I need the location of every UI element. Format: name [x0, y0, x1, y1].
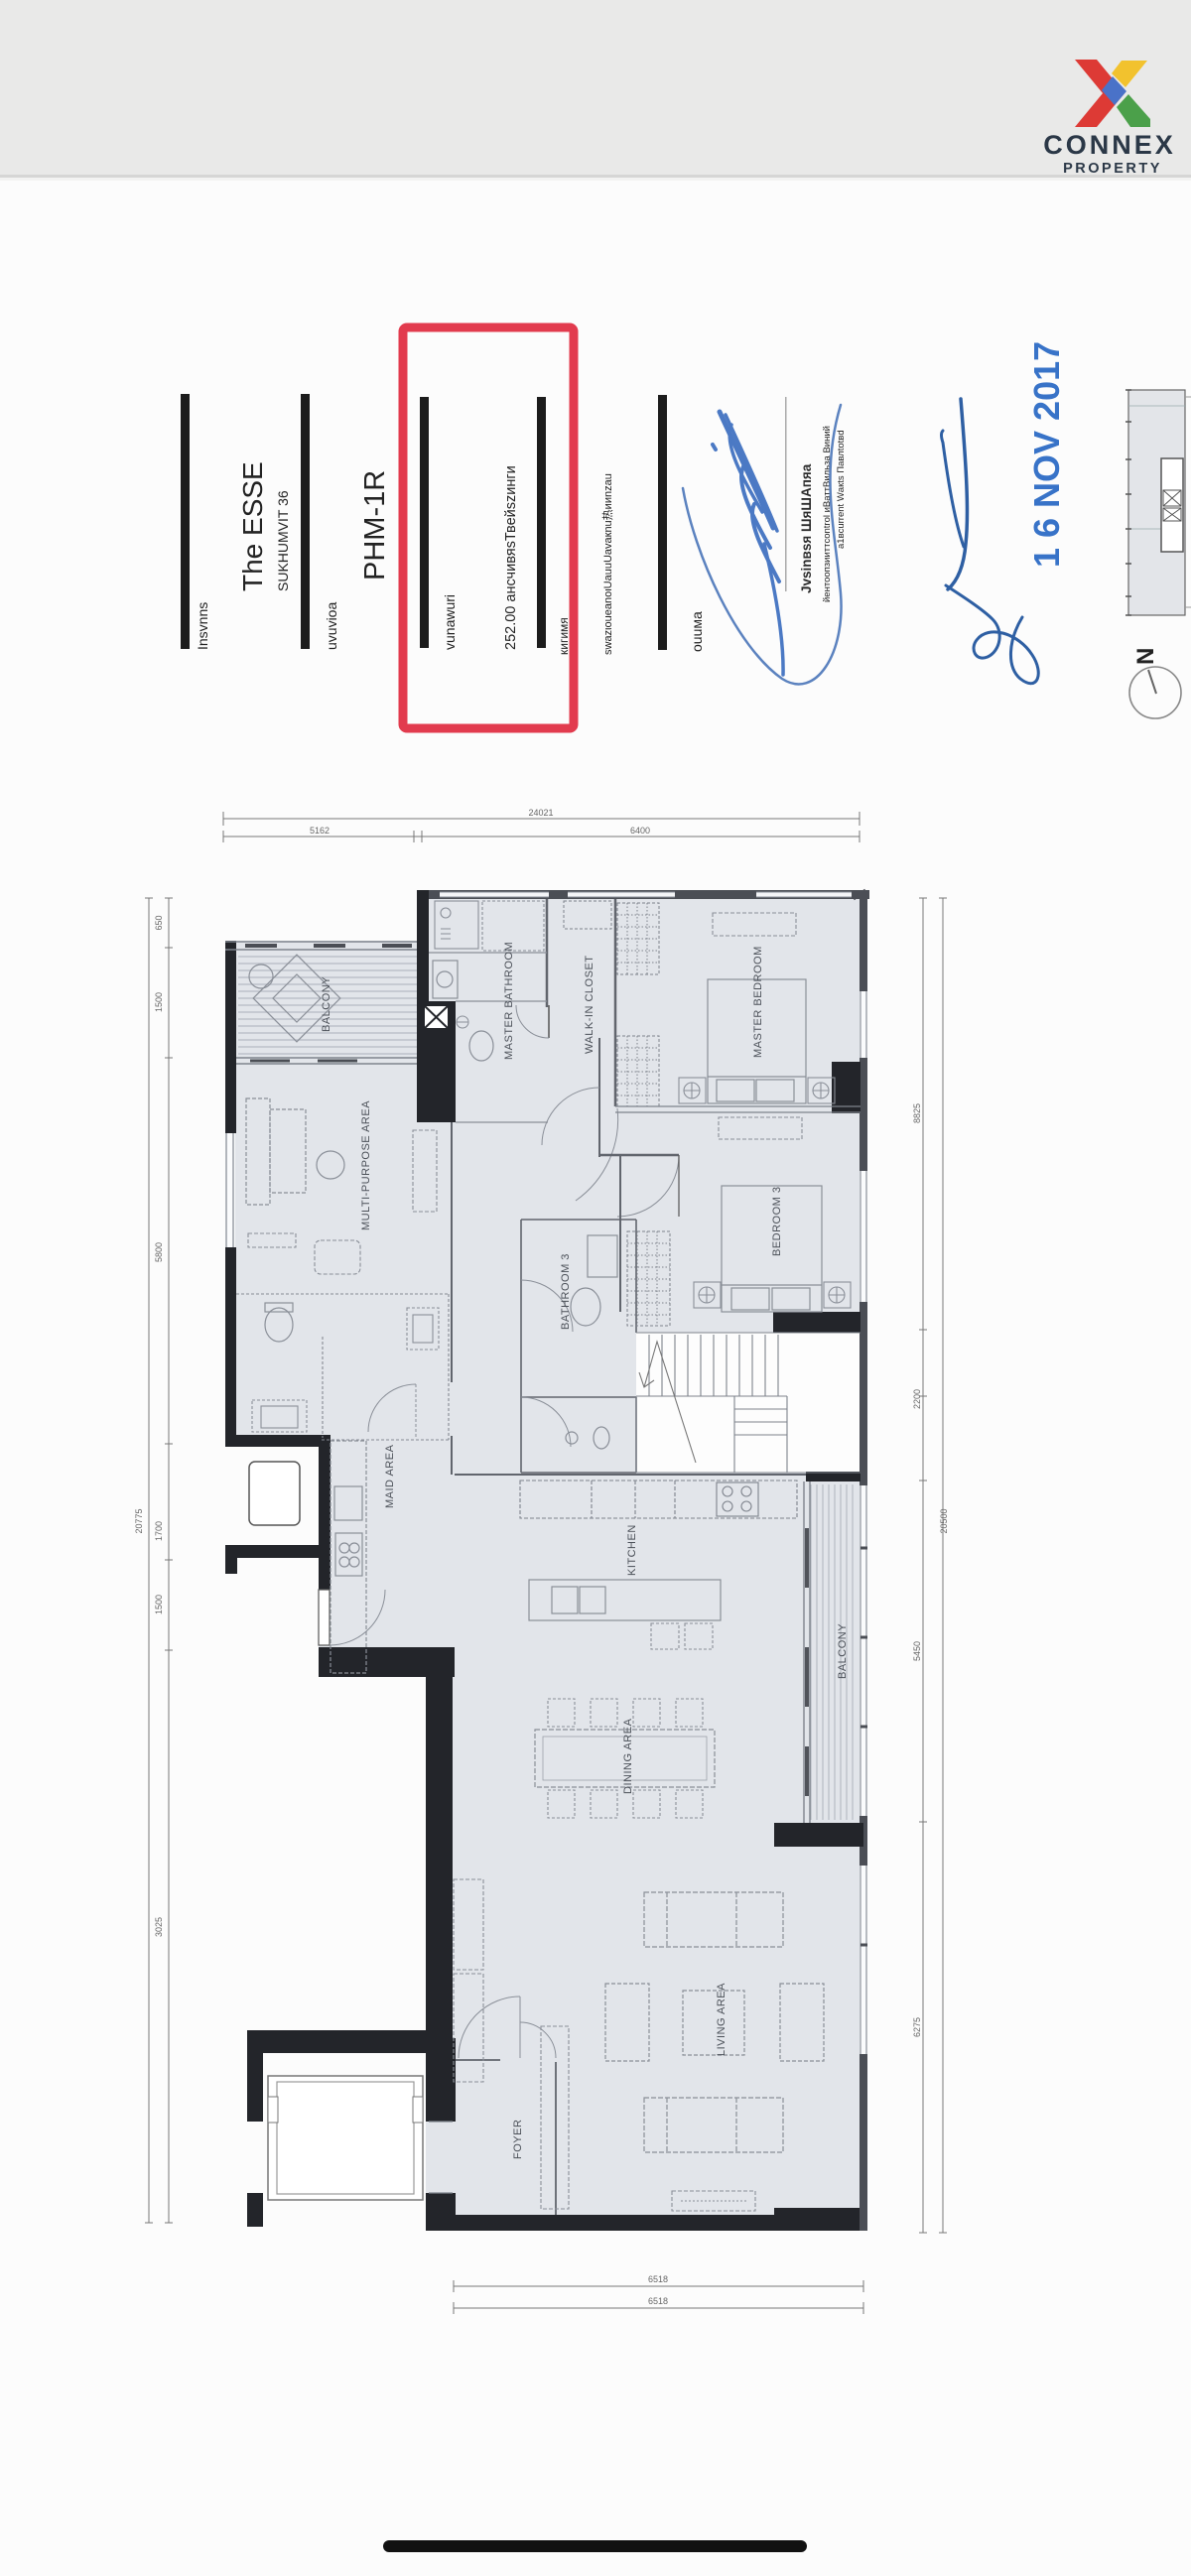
- svg-text:6518: 6518: [648, 2274, 668, 2284]
- svg-text:6400: 6400: [630, 826, 650, 836]
- svg-text:20775: 20775: [134, 1508, 144, 1533]
- svg-text:MULTI-PURPOSE AREA: MULTI-PURPOSE AREA: [360, 1100, 372, 1230]
- svg-text:BEDROOM 3: BEDROOM 3: [771, 1186, 783, 1256]
- svg-text:BALCONY: BALCONY: [837, 1623, 849, 1679]
- svg-text:1500: 1500: [154, 992, 164, 1012]
- svg-text:5162: 5162: [310, 826, 330, 836]
- svg-text:5450: 5450: [912, 1641, 922, 1661]
- svg-text:1500: 1500: [154, 1595, 164, 1614]
- svg-text:WALK-IN CLOSET: WALK-IN CLOSET: [584, 956, 595, 1055]
- svg-text:650: 650: [154, 915, 164, 930]
- svg-text:5800: 5800: [154, 1242, 164, 1262]
- svg-text:6518: 6518: [648, 2296, 668, 2306]
- svg-text:MASTER BEDROOM: MASTER BEDROOM: [752, 946, 764, 1058]
- svg-text:KITCHEN: KITCHEN: [626, 1524, 638, 1576]
- svg-text:24021: 24021: [528, 808, 553, 818]
- svg-text:MASTER BATHROOM: MASTER BATHROOM: [503, 942, 515, 1060]
- svg-text:BATHROOM 3: BATHROOM 3: [560, 1253, 572, 1330]
- svg-text:MAID AREA: MAID AREA: [384, 1444, 396, 1508]
- svg-text:1700: 1700: [154, 1521, 164, 1541]
- svg-text:LIVING AREA: LIVING AREA: [716, 1983, 728, 2056]
- svg-text:8825: 8825: [912, 1103, 922, 1123]
- svg-text:FOYER: FOYER: [512, 2120, 524, 2159]
- svg-text:20500: 20500: [939, 1508, 949, 1533]
- svg-text:BALCONY: BALCONY: [321, 976, 332, 1032]
- svg-text:2200: 2200: [912, 1389, 922, 1409]
- svg-text:3025: 3025: [154, 1917, 164, 1937]
- svg-text:DINING AREA: DINING AREA: [622, 1718, 634, 1794]
- svg-text:6275: 6275: [912, 2017, 922, 2037]
